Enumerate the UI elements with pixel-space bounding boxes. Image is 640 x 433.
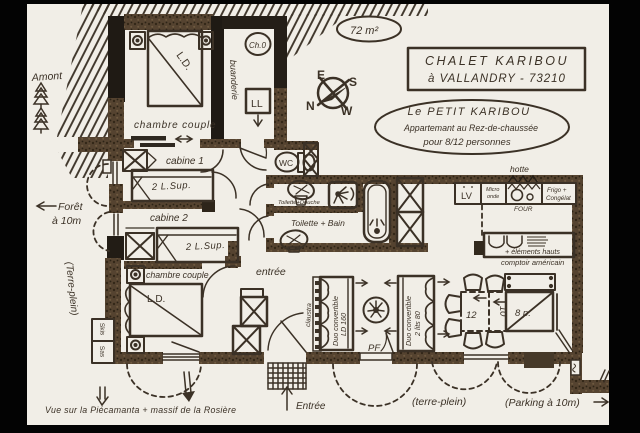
svg-text:cabine 2: cabine 2 — [150, 213, 188, 224]
svg-text:72 m²: 72 m² — [350, 25, 378, 37]
svg-text:CHALET KARIBOU: CHALET KARIBOU — [425, 54, 569, 68]
svg-text:LL: LL — [251, 98, 263, 110]
svg-text:FOUR: FOUR — [514, 206, 533, 213]
svg-text:à 10m: à 10m — [52, 215, 81, 227]
svg-text:W: W — [341, 104, 353, 118]
svg-text:onde: onde — [487, 194, 499, 200]
svg-text:Skis: Skis — [98, 323, 106, 336]
svg-text:S: S — [349, 75, 357, 89]
svg-text:2 L.Sup.: 2 L.Sup. — [185, 240, 226, 253]
svg-text:LD 160: LD 160 — [339, 313, 348, 336]
svg-text:Le PETIT KARIBOU: Le PETIT KARIBOU — [407, 106, 530, 118]
svg-text:chambre couple: chambre couple — [134, 120, 216, 131]
svg-text:Forêt: Forêt — [58, 201, 84, 213]
svg-text:Appartemant au Rez-de-chaussée: Appartemant au Rez-de-chaussée — [403, 123, 538, 133]
svg-text:12: 12 — [466, 310, 477, 321]
svg-text:Ch.0: Ch.0 — [249, 41, 266, 50]
svg-text:buanderie: buanderie — [228, 60, 240, 101]
svg-text:pour 8/12 personnes: pour 8/12 personnes — [422, 137, 510, 148]
svg-text:(Parking à 10m): (Parking à 10m) — [505, 397, 580, 409]
svg-text:cabine 1: cabine 1 — [166, 156, 204, 167]
svg-text:N: N — [306, 99, 315, 113]
svg-text:+ éléments hauts: + éléments hauts — [505, 247, 560, 256]
svg-text:Vue sur la Piécamanta + massif: Vue sur la Piécamanta + massif de la Ros… — [45, 405, 236, 415]
svg-text:Duo convertible: Duo convertible — [404, 296, 413, 346]
svg-text:Congélat: Congélat — [546, 195, 571, 202]
svg-text:Entrée: Entrée — [296, 401, 326, 412]
svg-text:à VALLANDRY - 73210: à VALLANDRY - 73210 — [428, 73, 566, 85]
svg-text:2 lits 80: 2 lits 80 — [413, 311, 422, 337]
svg-text:Toilette+Douche: Toilette+Douche — [278, 200, 321, 206]
svg-text:Sas: Sas — [98, 346, 106, 358]
svg-text:entrée: entrée — [256, 266, 286, 278]
svg-text:Amont: Amont — [30, 70, 63, 84]
svg-text:comptoir américain: comptoir américain — [501, 258, 564, 267]
svg-text:Micro: Micro — [486, 187, 499, 193]
svg-text:Frigo +: Frigo + — [547, 187, 567, 194]
svg-text:2 L.Sup.: 2 L.Sup. — [151, 180, 192, 193]
svg-text:Toilette + Bain: Toilette + Bain — [291, 218, 345, 228]
svg-text:L.D.: L.D. — [147, 294, 165, 305]
svg-text:E: E — [317, 68, 325, 82]
svg-text:WC: WC — [279, 158, 293, 168]
svg-text:(terre-plein): (terre-plein) — [412, 396, 466, 408]
svg-text:chambre couple: chambre couple — [146, 270, 209, 280]
svg-text:hotte: hotte — [510, 164, 529, 174]
svg-text:LV: LV — [461, 191, 473, 202]
svg-text:claustra: claustra — [305, 303, 313, 327]
svg-text:8 p.: 8 p. — [515, 308, 531, 319]
